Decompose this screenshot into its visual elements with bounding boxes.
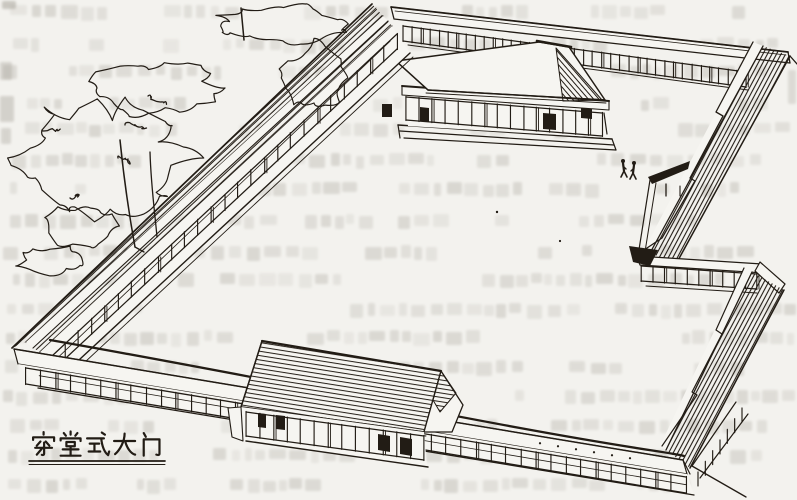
left-corridor-wall: [12, 4, 413, 376]
scanned-book-page: 穿堂式大门: [0, 0, 797, 500]
figure-caption-text: 穿堂式大门: [28, 428, 173, 462]
courtyard-figures: [496, 159, 636, 242]
main-hall: [382, 41, 616, 150]
courtyard-figure-drawing: [0, 0, 797, 500]
